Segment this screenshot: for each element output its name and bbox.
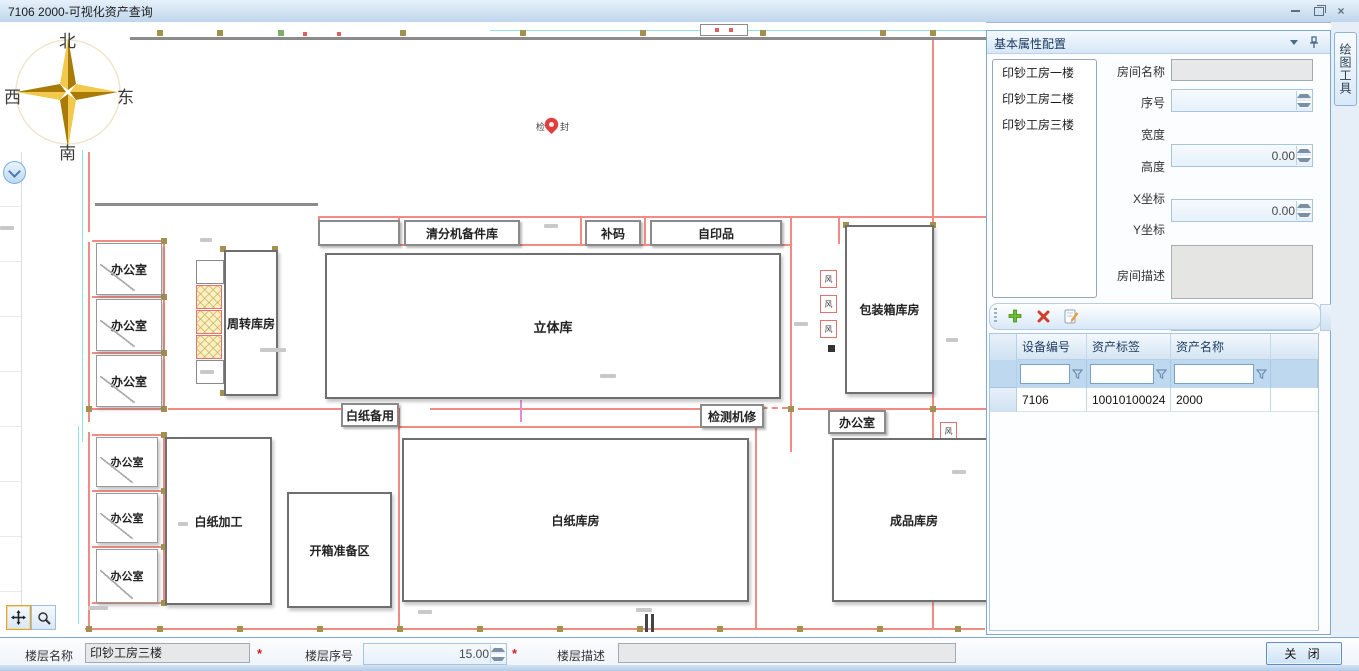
cell-device-no: 7106 [1017, 388, 1087, 412]
floor-seq-label: 楼层序号 [305, 647, 353, 664]
pin-label-left: 检 [536, 120, 545, 133]
grid-filter-row [1017, 360, 1318, 389]
room-office[interactable]: 办公室 [96, 355, 162, 407]
y-coord-label: Y坐标 [1069, 221, 1165, 238]
bottom-edge-strip [0, 665, 1359, 671]
spin-buttons[interactable] [490, 645, 505, 663]
filter-input[interactable] [1090, 364, 1154, 384]
room-office[interactable]: 办公室 [96, 299, 162, 351]
height-label: 高度 [1069, 158, 1165, 175]
close-button[interactable]: 关 闭 [1266, 642, 1342, 665]
filter-input[interactable] [1020, 364, 1070, 384]
seq-stepper[interactable] [1171, 89, 1313, 112]
chevron-down-icon[interactable] [3, 161, 26, 184]
close-icon[interactable]: × [1329, 3, 1353, 19]
room-baizhi-jiagong[interactable]: 白纸加工 [165, 437, 272, 605]
restore-icon[interactable] [1307, 3, 1331, 19]
app-window: 7106 2000-可视化资产查询 × 北 西 东 南 检 封 [0, 0, 1359, 671]
cell-asset-tag: 10010100024 [1087, 388, 1171, 412]
x-coord-label: X坐标 [1069, 190, 1165, 207]
room-baizhi-kufang[interactable]: 白纸库房 [402, 438, 749, 602]
room-zhouzhuan[interactable]: 周转库房 [224, 250, 278, 396]
grid-header-row: 设备编号 资产标签 资产名称 [1017, 334, 1318, 360]
pushpin-icon[interactable] [1306, 35, 1322, 49]
column-header[interactable]: 设备编号 [1017, 334, 1087, 360]
table-row[interactable]: 7106 10010100024 2000 [1017, 388, 1318, 412]
chevron-down-icon[interactable] [1286, 35, 1302, 49]
funnel-icon[interactable] [1072, 369, 1083, 380]
delete-icon[interactable] [1032, 306, 1054, 326]
filter-input[interactable] [1174, 364, 1254, 384]
plus-icon[interactable] [1004, 306, 1026, 326]
required-mark: * [257, 646, 262, 661]
room-office[interactable]: 办公室 [96, 549, 158, 603]
spin-buttons[interactable] [1296, 146, 1311, 165]
room-office[interactable]: 办公室 [828, 410, 886, 434]
room-liti[interactable]: 立体库 [325, 253, 781, 399]
grid-row-indicator[interactable] [990, 388, 1017, 412]
room-buma[interactable]: 补码 [585, 220, 641, 246]
room-baizhi-beiyong[interactable]: 白纸备用 [341, 403, 399, 427]
map-pin-icon[interactable] [542, 115, 560, 133]
grid-indicator-header [990, 334, 1017, 360]
room-office[interactable]: 办公室 [96, 493, 158, 543]
funnel-icon[interactable] [1156, 369, 1167, 380]
right-dock-strip: 绘图工具 [1331, 22, 1359, 637]
vent-box: 风 [820, 320, 837, 338]
window-title: 7106 2000-可视化资产查询 [8, 3, 153, 20]
width-stepper[interactable]: 0.00 [1171, 144, 1313, 167]
floor-desc-label: 楼层描述 [557, 647, 605, 664]
minimize-icon[interactable] [1283, 3, 1307, 19]
seq-label: 序号 [1069, 94, 1165, 111]
asset-grid: 设备编号 资产标签 资产名称 7106 10010100024 [989, 333, 1319, 631]
column-header-empty [1271, 334, 1318, 360]
tab-draw-tools-label: 绘图工具 [1337, 43, 1354, 95]
spin-buttons[interactable] [1296, 91, 1311, 110]
width-label: 宽度 [1069, 126, 1165, 143]
room-baozhuang[interactable]: 包装箱库房 [845, 225, 934, 394]
cell-empty [1271, 388, 1318, 412]
left-tool-strip [0, 152, 22, 622]
panel-header[interactable]: 基本属性配置 [987, 31, 1330, 54]
floor-desc-field [618, 643, 956, 663]
room-name-field [1171, 59, 1313, 81]
elevator-shaft [196, 310, 222, 334]
room-chengpin[interactable]: 成品库房 [832, 438, 986, 602]
compass-north: 北 [59, 27, 76, 52]
room-desc-label: 房间描述 [1069, 267, 1165, 284]
required-mark: * [512, 646, 517, 661]
floor-seq-stepper[interactable]: 15.00 [363, 643, 507, 665]
room-kaixiang[interactable]: 开箱准备区 [287, 492, 392, 608]
room-name-label: 房间名称 [1069, 63, 1165, 80]
edit-note-icon[interactable] [1060, 306, 1082, 326]
properties-panel: 基本属性配置 印钞工房一楼 印钞工房二楼 印钞工房三楼 房间名称 序号 宽度 0… [986, 30, 1331, 635]
room-jiance-jixiu[interactable]: 检测机修 [700, 404, 764, 428]
vent-box: 风 [820, 295, 837, 313]
compass-west: 西 [4, 83, 21, 108]
vent-box: 风 [820, 270, 837, 288]
room-desc-field [1171, 245, 1313, 299]
elevator-shaft [196, 285, 222, 309]
compass-south: 南 [59, 139, 76, 164]
panel-title: 基本属性配置 [994, 35, 1066, 52]
room-office[interactable]: 办公室 [96, 437, 158, 487]
footer-bar: 楼层名称 印钞工房三楼 * 楼层序号 15.00 * 楼层描述 关 闭 [0, 637, 1359, 671]
floor-name-field: 印钞工房三楼 [85, 643, 250, 663]
magnifier-icon[interactable] [31, 605, 56, 630]
pin-label-right: 封 [560, 120, 569, 133]
height-stepper[interactable]: 0.00 [1171, 199, 1313, 222]
column-header[interactable]: 资产名称 [1171, 334, 1271, 360]
floorplan-canvas[interactable]: 北 西 东 南 检 封 [0, 22, 986, 637]
elevator-shaft [196, 335, 222, 359]
asset-toolbar [989, 303, 1321, 330]
move-icon[interactable] [6, 605, 31, 630]
room-label-blank[interactable] [318, 220, 400, 246]
grid-indicator-filter [990, 360, 1017, 388]
title-bar: 7106 2000-可视化资产查询 × [0, 0, 1359, 23]
spin-buttons[interactable] [1296, 201, 1311, 220]
floor-name-label: 楼层名称 [25, 647, 73, 664]
toolbar-grip[interactable] [994, 308, 997, 324]
room-office[interactable]: 办公室 [96, 243, 162, 295]
room-ziyinpin[interactable]: 自印品 [650, 220, 782, 246]
room-qingfenji[interactable]: 清分机备件库 [404, 220, 520, 246]
cell-asset-name: 2000 [1171, 388, 1271, 412]
funnel-icon[interactable] [1256, 369, 1267, 380]
tab-draw-tools[interactable]: 绘图工具 [1334, 32, 1357, 106]
column-header[interactable]: 资产标签 [1087, 334, 1171, 360]
compass-east: 东 [117, 83, 134, 108]
